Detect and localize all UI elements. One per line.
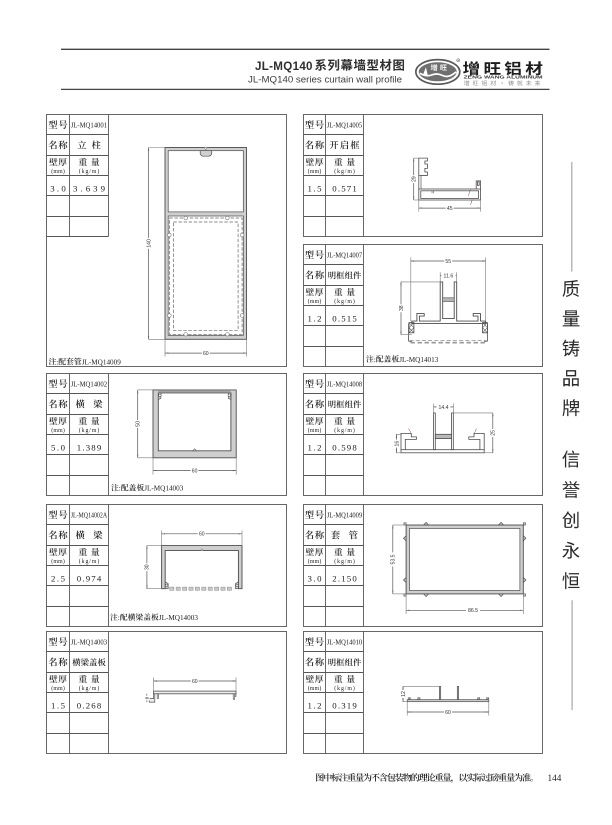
svg-text:JL-MQ140: JL-MQ140 <box>255 60 313 73</box>
svg-text:JL-MQ14009: JL-MQ14009 <box>327 511 363 520</box>
svg-text:86.5: 86.5 <box>468 608 478 614</box>
svg-text:0.598: 0.598 <box>332 442 357 452</box>
svg-text:JL-MQ14013: JL-MQ14013 <box>399 356 439 364</box>
svg-text:60: 60 <box>192 468 198 474</box>
svg-text:30: 30 <box>145 564 151 570</box>
svg-text:60: 60 <box>203 351 209 357</box>
svg-text::: : <box>374 356 376 364</box>
svg-text:JL-MQ14001: JL-MQ14001 <box>71 121 108 130</box>
svg-text:0.974: 0.974 <box>77 573 102 583</box>
svg-text:(mm): (mm) <box>51 168 65 175</box>
svg-text:JL-MQ14002A: JL-MQ14002A <box>71 511 108 520</box>
svg-text:(kg/m): (kg/m) <box>334 685 355 692</box>
svg-text:JL-MQ14005: JL-MQ14005 <box>327 121 363 130</box>
svg-text:(mm): (mm) <box>51 685 65 692</box>
svg-text:1.2: 1.2 <box>308 442 322 452</box>
svg-text:1.5: 1.5 <box>308 183 323 193</box>
svg-text:JL-MQ14002: JL-MQ14002 <box>71 380 108 389</box>
svg-text:(mm): (mm) <box>308 427 322 434</box>
svg-text:1.5: 1.5 <box>51 700 66 710</box>
svg-text:(kg/m): (kg/m) <box>79 427 100 434</box>
svg-text:(kg/m): (kg/m) <box>334 558 355 565</box>
svg-text:(mm): (mm) <box>51 427 65 434</box>
svg-text:140: 140 <box>146 239 152 248</box>
svg-text:JL-MQ14008: JL-MQ14008 <box>327 380 363 389</box>
svg-text:2.150: 2.150 <box>332 573 357 583</box>
svg-text:3.639: 3.639 <box>73 183 106 193</box>
svg-text:3.0: 3.0 <box>50 183 66 193</box>
svg-text:14.4: 14.4 <box>438 405 448 411</box>
svg-text:0.515: 0.515 <box>332 313 357 323</box>
svg-text:60: 60 <box>199 532 205 538</box>
svg-text:JL-MQ140 series curtain wall p: JL-MQ140 series curtain wall profile <box>248 74 402 84</box>
svg-text:0.571: 0.571 <box>332 183 357 193</box>
svg-text:60: 60 <box>445 710 451 716</box>
svg-text:(kg/m): (kg/m) <box>79 685 100 692</box>
svg-text:144: 144 <box>548 773 562 783</box>
svg-text:0.268: 0.268 <box>77 700 102 710</box>
svg-text:38: 38 <box>399 305 405 311</box>
svg-text:55: 55 <box>445 259 451 265</box>
svg-text:(kg/m): (kg/m) <box>79 558 100 565</box>
svg-text:29: 29 <box>412 176 418 182</box>
svg-text:JL-MQ14003: JL-MQ14003 <box>159 614 199 622</box>
svg-text:(kg/m): (kg/m) <box>334 298 355 305</box>
svg-text:(kg/m): (kg/m) <box>334 168 355 175</box>
svg-text:12: 12 <box>401 691 407 697</box>
svg-text:25: 25 <box>491 430 497 436</box>
svg-text:3.0: 3.0 <box>308 573 323 583</box>
svg-text:JL-MQ14003: JL-MQ14003 <box>71 638 108 647</box>
svg-text:0.319: 0.319 <box>332 700 357 710</box>
svg-text:JL-MQ14003: JL-MQ14003 <box>144 484 184 492</box>
svg-text:(mm): (mm) <box>308 298 322 305</box>
svg-text:53.5: 53.5 <box>391 554 397 564</box>
svg-text::: : <box>118 614 120 622</box>
svg-text:(kg/m): (kg/m) <box>334 427 355 434</box>
svg-text:60: 60 <box>192 679 198 685</box>
svg-text:50: 50 <box>136 421 142 427</box>
svg-text:2.5: 2.5 <box>51 573 66 583</box>
svg-text:1.389: 1.389 <box>77 442 102 452</box>
svg-text:(mm): (mm) <box>308 558 322 565</box>
svg-text:JL-MQ14009: JL-MQ14009 <box>82 358 122 366</box>
svg-text:(kg/m): (kg/m) <box>79 168 100 175</box>
svg-text:1.2: 1.2 <box>308 700 322 710</box>
svg-text:JL-MQ14010: JL-MQ14010 <box>327 638 363 647</box>
svg-text:(mm): (mm) <box>308 168 322 175</box>
svg-text:(mm): (mm) <box>308 685 322 692</box>
svg-text:1.2: 1.2 <box>308 313 322 323</box>
svg-text:5.0: 5.0 <box>51 442 66 452</box>
svg-text:11.6: 11.6 <box>444 274 454 280</box>
svg-text:45: 45 <box>447 206 453 212</box>
svg-text:ZENG WANG ALUMINUM: ZENG WANG ALUMINUM <box>464 75 543 80</box>
svg-text::: : <box>119 484 121 492</box>
svg-text:16: 16 <box>394 441 400 447</box>
svg-text:JL-MQ14007: JL-MQ14007 <box>327 251 363 260</box>
svg-text:8: 8 <box>145 696 151 699</box>
svg-text:(mm): (mm) <box>51 558 65 565</box>
svg-text::: : <box>56 358 58 366</box>
